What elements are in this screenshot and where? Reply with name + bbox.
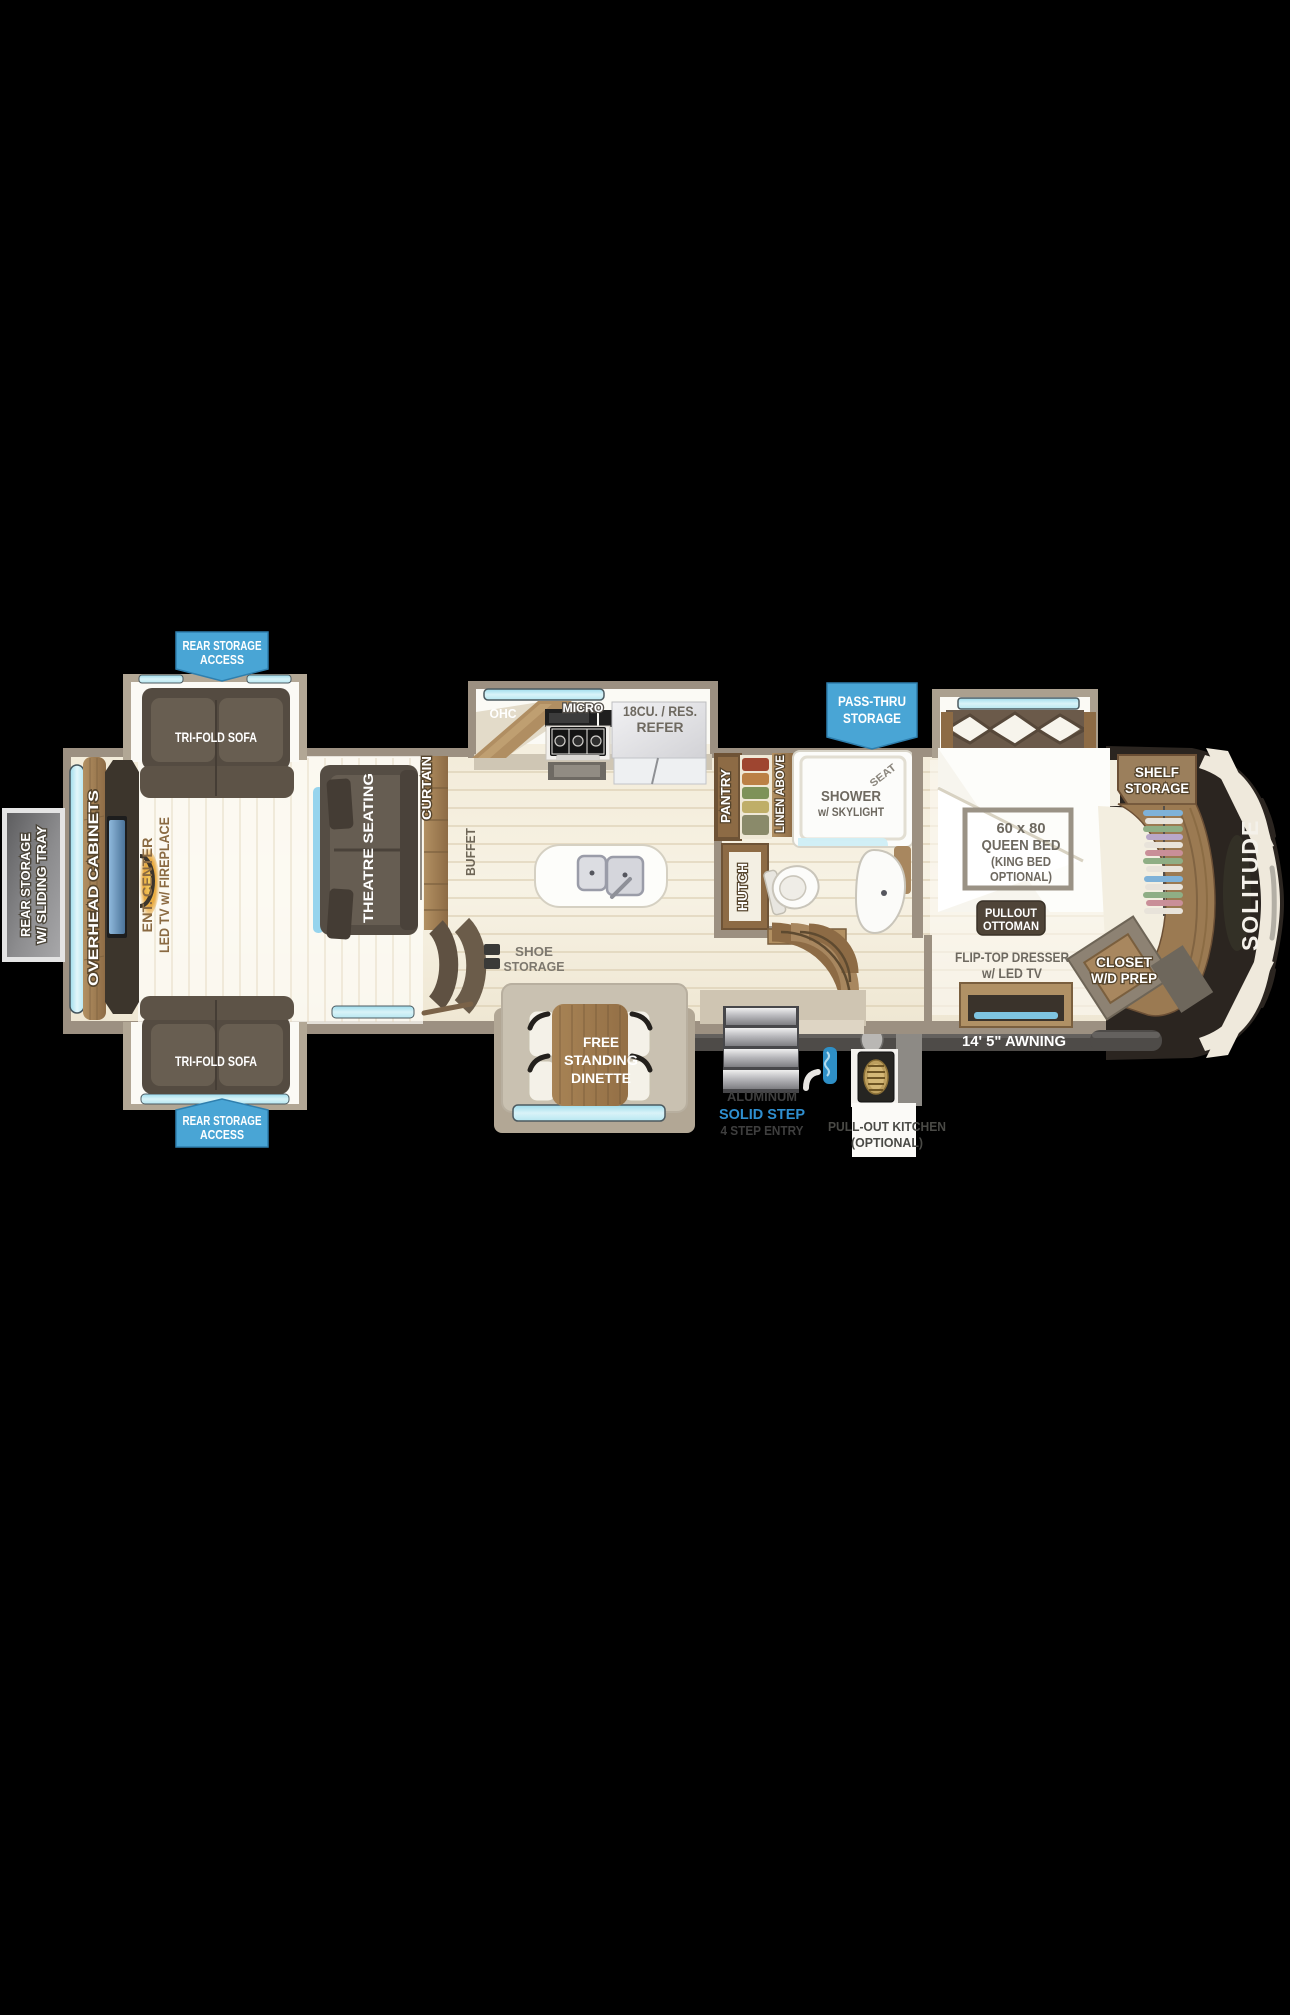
- svg-text:MICRO: MICRO: [563, 703, 604, 715]
- svg-text:60 x 80: 60 x 80: [997, 821, 1046, 837]
- svg-text:LED TV w/ FIREPLACE: LED TV w/ FIREPLACE: [156, 817, 172, 953]
- svg-text:ACCESS: ACCESS: [200, 653, 244, 667]
- svg-text:FREE: FREE: [583, 1035, 619, 1050]
- svg-text:w/ LED TV: w/ LED TV: [981, 965, 1042, 981]
- svg-text:STORAGE: STORAGE: [504, 960, 565, 974]
- svg-text:SOLITUDE: SOLITUDE: [1237, 819, 1263, 951]
- svg-text:BUFFET: BUFFET: [464, 828, 478, 876]
- svg-text:HUTCH: HUTCH: [735, 863, 750, 911]
- svg-text:OPTIONAL): OPTIONAL): [990, 870, 1052, 884]
- svg-text:(OPTIONAL): (OPTIONAL): [851, 1135, 923, 1150]
- svg-text:(KING BED: (KING BED: [991, 855, 1051, 869]
- svg-text:W/D PREP: W/D PREP: [1091, 971, 1157, 986]
- svg-text:w/ SKYLIGHT: w/ SKYLIGHT: [817, 805, 884, 819]
- svg-text:W/ SLIDING TRAY: W/ SLIDING TRAY: [34, 826, 49, 944]
- svg-text:TRI-FOLD SOFA: TRI-FOLD SOFA: [175, 1053, 257, 1069]
- svg-text:4 STEP ENTRY: 4 STEP ENTRY: [721, 1123, 804, 1138]
- svg-text:STANDING: STANDING: [564, 1053, 638, 1068]
- svg-text:OVERHEAD CABINETS: OVERHEAD CABINETS: [86, 790, 101, 986]
- svg-text:ENT. CENTER: ENT. CENTER: [139, 838, 155, 933]
- svg-text:LINEN ABOVE: LINEN ABOVE: [773, 755, 787, 833]
- svg-text:ACCESS: ACCESS: [200, 1128, 244, 1142]
- svg-text:TRI-FOLD SOFA: TRI-FOLD SOFA: [175, 729, 257, 745]
- svg-text:CURTAIN: CURTAIN: [419, 756, 434, 820]
- svg-text:DINETTE: DINETTE: [571, 1071, 631, 1086]
- svg-text:REFER: REFER: [637, 720, 684, 735]
- svg-text:QUEEN BED: QUEEN BED: [982, 838, 1061, 854]
- svg-text:PULLOUT: PULLOUT: [985, 906, 1038, 920]
- svg-text:ALUMINUM: ALUMINUM: [727, 1089, 797, 1104]
- svg-text:18CU. / RES.: 18CU. / RES.: [623, 704, 697, 719]
- svg-text:STORAGE: STORAGE: [1125, 781, 1189, 796]
- svg-text:14' 5" AWNING: 14' 5" AWNING: [962, 1034, 1066, 1050]
- svg-text:REAR STORAGE: REAR STORAGE: [183, 1114, 262, 1128]
- svg-text:OHC: OHC: [490, 707, 517, 721]
- svg-text:SHOWER: SHOWER: [821, 789, 881, 805]
- svg-text:CLOSET: CLOSET: [1096, 955, 1153, 970]
- svg-text:PASS-THRU: PASS-THRU: [838, 694, 906, 709]
- svg-text:SHOE: SHOE: [515, 945, 553, 959]
- svg-text:REAR STORAGE: REAR STORAGE: [183, 639, 262, 653]
- svg-text:PULL-OUT KITCHEN: PULL-OUT KITCHEN: [828, 1119, 946, 1134]
- svg-text:OTTOMAN: OTTOMAN: [983, 919, 1039, 933]
- svg-text:SHELF: SHELF: [1135, 765, 1179, 780]
- svg-text:SOLID STEP: SOLID STEP: [719, 1106, 805, 1123]
- svg-text:REAR STORAGE: REAR STORAGE: [18, 833, 33, 937]
- svg-text:PANTRY: PANTRY: [719, 768, 733, 823]
- svg-text:THEATRE SEATING: THEATRE SEATING: [360, 773, 376, 923]
- svg-text:STORAGE: STORAGE: [843, 711, 901, 726]
- svg-text:FLIP-TOP DRESSER: FLIP-TOP DRESSER: [955, 949, 1069, 965]
